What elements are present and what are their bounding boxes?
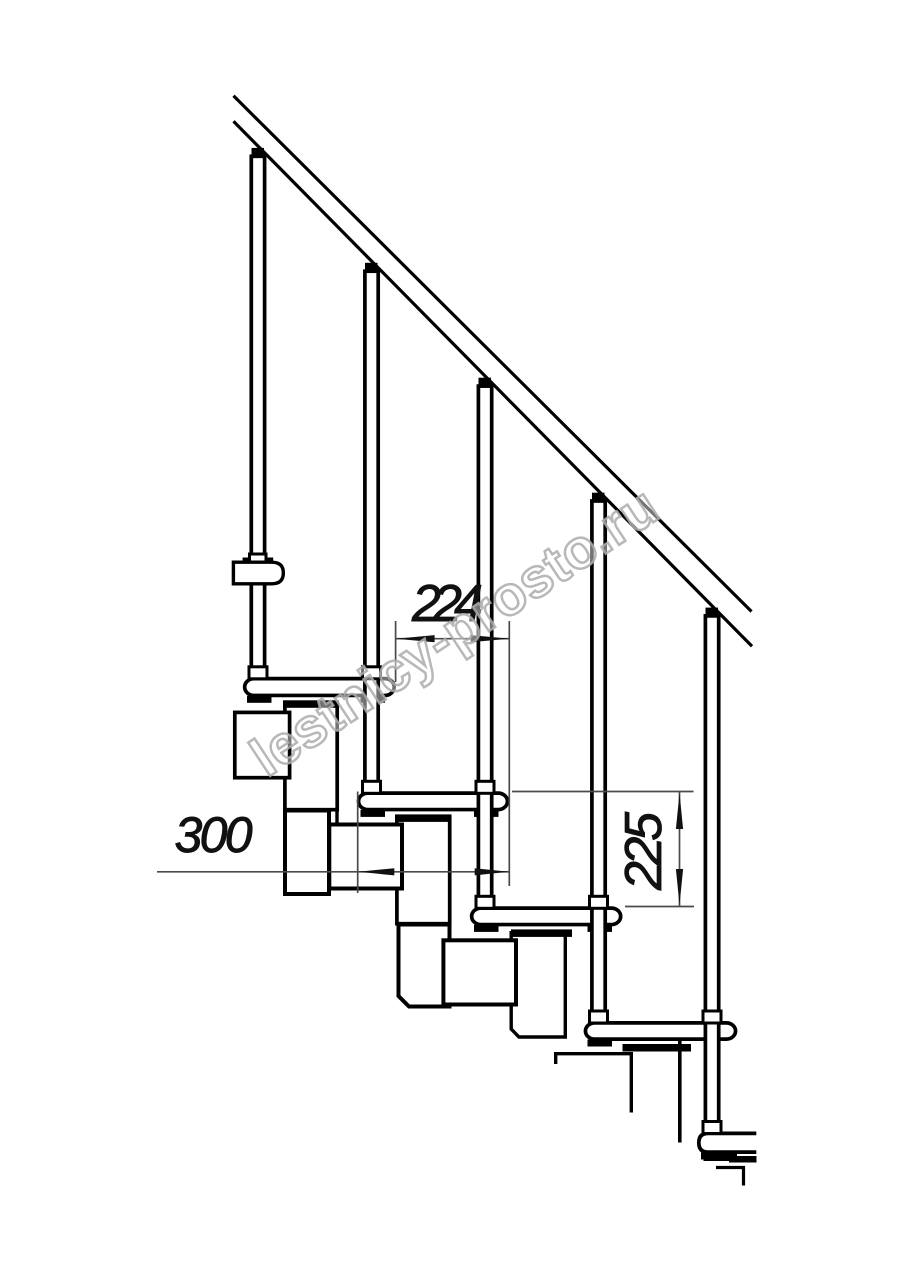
svg-text:300: 300 [175, 807, 253, 863]
svg-text:225: 225 [615, 811, 673, 891]
